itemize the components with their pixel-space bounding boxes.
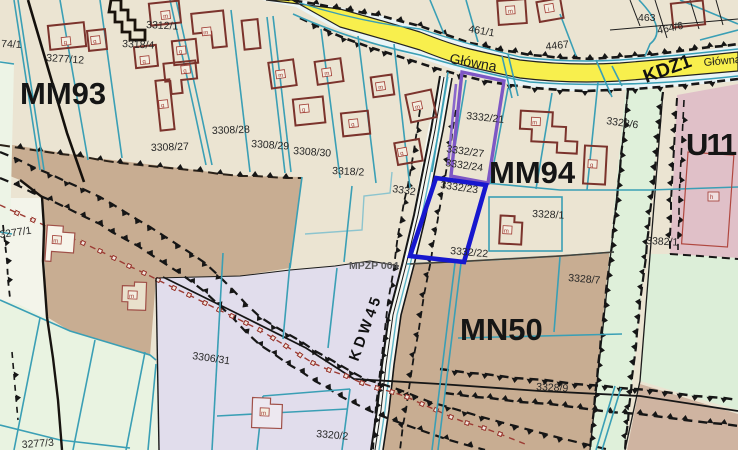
svg-text:m: m (278, 73, 284, 80)
svg-text:MN50: MN50 (460, 312, 543, 347)
svg-text:463: 463 (638, 12, 656, 24)
svg-text:m: m (261, 411, 266, 417)
svg-text:3318/4: 3318/4 (122, 38, 155, 52)
svg-text:74/1: 74/1 (1, 38, 22, 51)
svg-text:g: g (93, 39, 97, 45)
svg-text:MPZP 004: MPZP 004 (349, 260, 399, 272)
svg-text:m: m (53, 239, 58, 245)
svg-text:3312/1: 3312/1 (146, 19, 179, 33)
svg-text:g: g (179, 49, 183, 55)
svg-text:h: h (710, 195, 713, 201)
svg-text:g: g (351, 122, 355, 128)
svg-text:U11: U11 (686, 127, 737, 162)
svg-text:m: m (324, 71, 330, 78)
svg-text:m: m (203, 30, 209, 36)
svg-text:g: g (183, 68, 187, 74)
svg-text:m: m (508, 9, 513, 15)
svg-text:MM93: MM93 (20, 76, 106, 111)
svg-text:g: g (590, 163, 594, 169)
svg-text:3328/9: 3328/9 (536, 381, 569, 395)
svg-text:m: m (378, 85, 384, 92)
svg-text:m: m (129, 294, 134, 300)
svg-text:MM94: MM94 (489, 155, 576, 190)
svg-text:3382/1: 3382/1 (646, 235, 679, 249)
svg-text:m: m (504, 229, 509, 235)
svg-text:g: g (161, 103, 165, 109)
svg-text:m: m (532, 120, 537, 126)
svg-text:g: g (63, 40, 67, 46)
svg-text:4467: 4467 (545, 39, 570, 53)
svg-text:3308/27: 3308/27 (151, 141, 190, 154)
svg-text:g: g (302, 107, 306, 113)
svg-text:3328/1: 3328/1 (532, 208, 565, 222)
svg-text:3318/2: 3318/2 (332, 165, 365, 179)
svg-text:g: g (142, 59, 146, 65)
svg-text:3277/3: 3277/3 (21, 437, 54, 450)
svg-text:3308/28: 3308/28 (212, 124, 251, 137)
